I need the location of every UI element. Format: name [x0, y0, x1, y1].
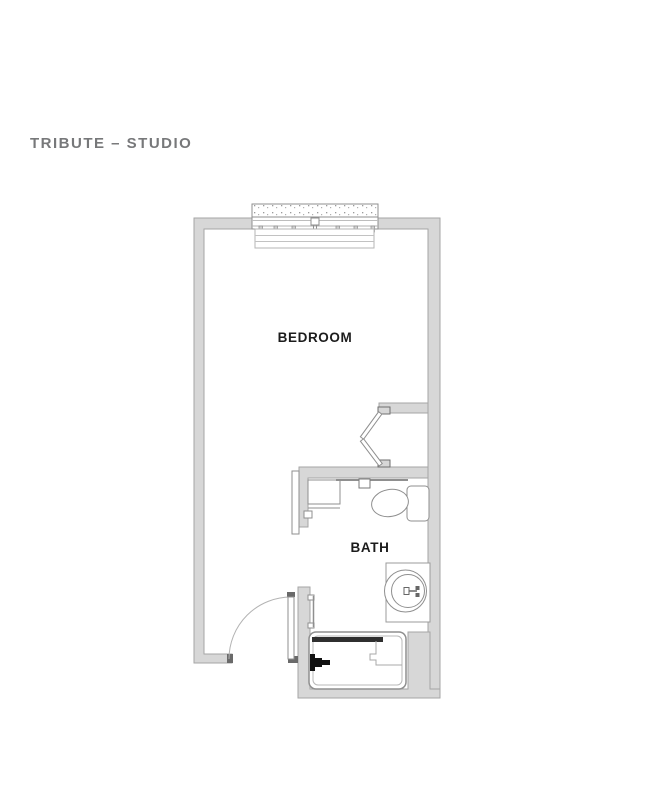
- door-track-tab: [304, 511, 312, 518]
- bath-label: BATH: [320, 540, 420, 555]
- page: { "title": "TRIBUTE – STUDIO", "plan": {…: [0, 0, 657, 791]
- wall-left-and-top: [194, 218, 253, 663]
- toilet-tank: [407, 486, 429, 521]
- sliding-bath-door: [292, 471, 299, 534]
- entry-door-swing-arc: [229, 597, 291, 659]
- bedroom-label: BEDROOM: [250, 330, 380, 345]
- entry-door-leaf: [288, 597, 294, 659]
- door-jamb-cap: [287, 592, 295, 597]
- wall-end-cap: [227, 654, 233, 663]
- toilet-bowl: [369, 486, 410, 519]
- grab-bar-bracket: [359, 479, 370, 488]
- window-interior-sill: [255, 229, 374, 248]
- bifold-door-panel: [360, 412, 381, 439]
- sink-basin-outer: [385, 570, 427, 612]
- shelf-unit: [308, 480, 340, 504]
- floor-plan: [0, 0, 657, 791]
- window-exterior-sill: [252, 204, 378, 217]
- wall-right-and-top: [377, 218, 440, 698]
- bifold-door-panel: [360, 439, 382, 466]
- shower-door-bar: [312, 637, 383, 642]
- window-center-mullion: [311, 218, 319, 225]
